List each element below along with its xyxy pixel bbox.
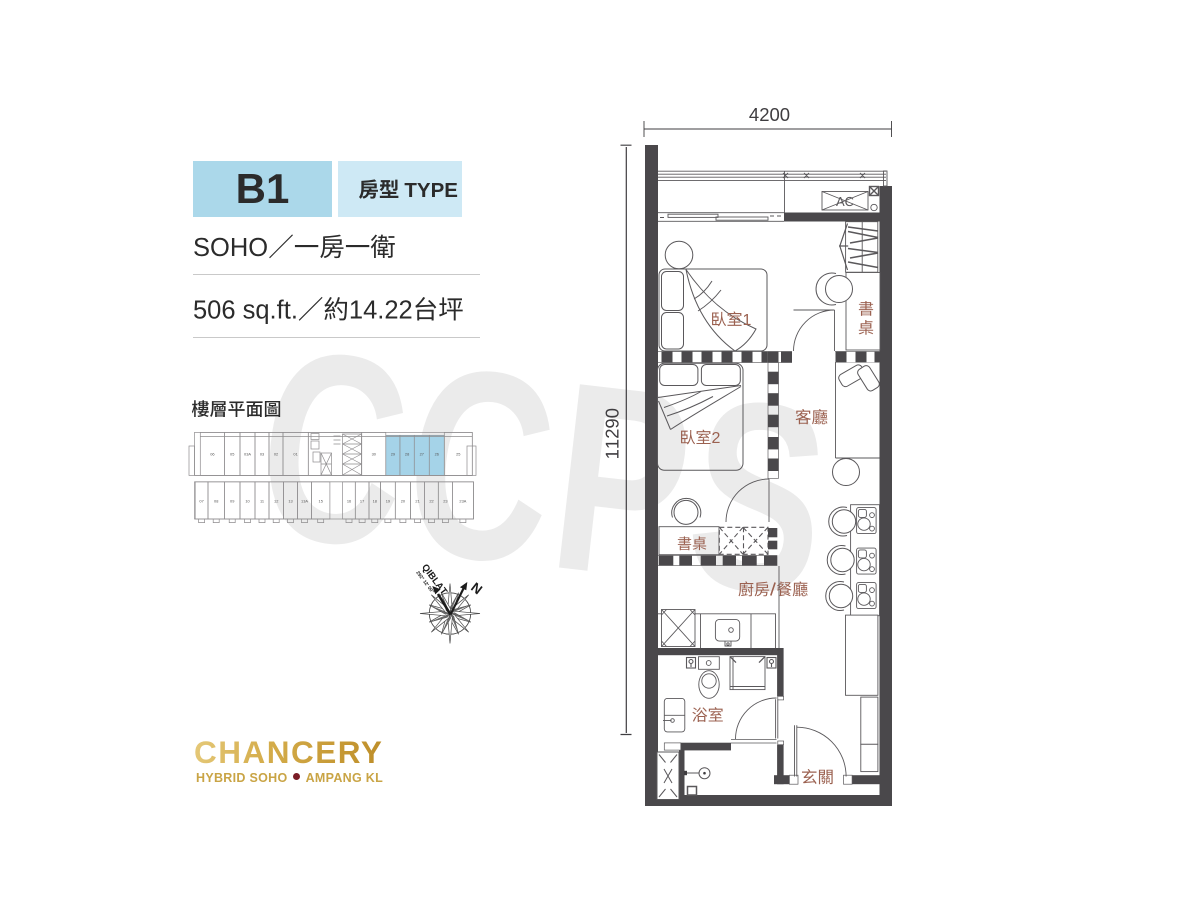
svg-text:23: 23 [443, 499, 447, 504]
svg-text:TYPE: TYPE [404, 179, 458, 202]
svg-text:28: 28 [405, 452, 409, 457]
svg-text:05: 05 [230, 452, 234, 457]
svg-text:23A: 23A [459, 499, 466, 504]
svg-text:11: 11 [260, 499, 264, 504]
svg-text:02: 02 [274, 452, 278, 457]
svg-text:18: 18 [373, 499, 377, 504]
svg-text:09: 09 [230, 499, 234, 504]
svg-text:10: 10 [245, 499, 250, 504]
svg-text:01: 01 [293, 452, 297, 457]
svg-text:21: 21 [415, 499, 419, 504]
svg-text:03: 03 [260, 452, 264, 457]
svg-text:4200: 4200 [749, 104, 790, 125]
svg-text:03A: 03A [244, 452, 251, 457]
svg-text:506 sq.ft.: 506 sq.ft. [193, 297, 298, 325]
svg-text:26: 26 [435, 452, 439, 457]
svg-text:12: 12 [274, 499, 278, 504]
svg-text:25: 25 [456, 452, 460, 457]
svg-text:17: 17 [360, 499, 364, 504]
svg-text:07: 07 [199, 499, 203, 504]
svg-text:20: 20 [401, 499, 406, 504]
svg-text:13: 13 [288, 499, 292, 504]
svg-text:22: 22 [429, 499, 433, 504]
svg-text:2: 2 [712, 430, 721, 447]
svg-text:16: 16 [347, 499, 351, 504]
svg-text:SOHO: SOHO [193, 234, 268, 262]
svg-text:27: 27 [420, 452, 424, 457]
svg-text:29: 29 [391, 452, 395, 457]
svg-text:06: 06 [210, 452, 214, 457]
svg-text:19: 19 [386, 499, 390, 504]
svg-text:14.22: 14.22 [349, 297, 413, 325]
svg-text:13A: 13A [301, 499, 308, 504]
svg-text:1: 1 [743, 312, 752, 329]
svg-text:08: 08 [214, 499, 218, 504]
svg-text:30: 30 [372, 452, 377, 457]
svg-text:15: 15 [319, 499, 323, 504]
